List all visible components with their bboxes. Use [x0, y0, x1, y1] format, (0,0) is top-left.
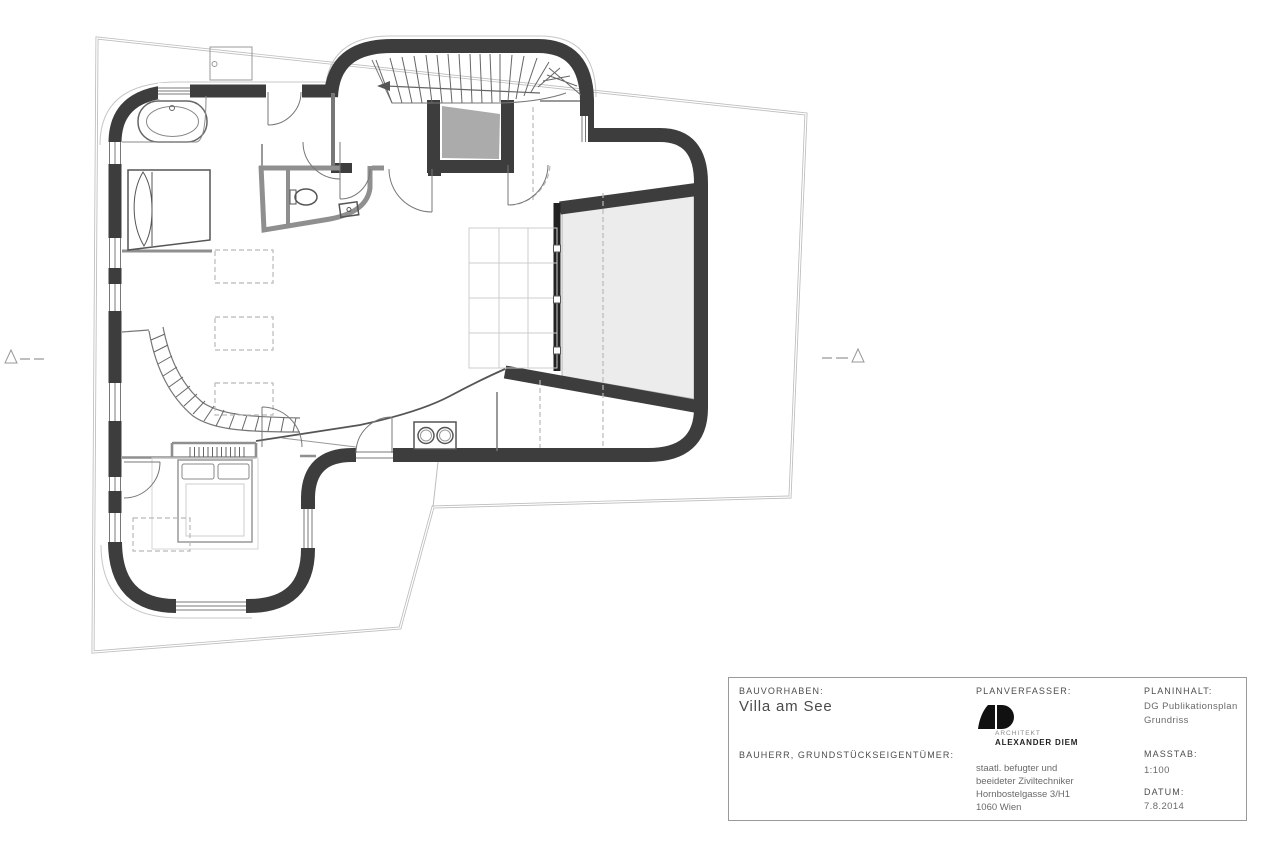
planinhalt-value-2: Grundriss: [1144, 715, 1189, 726]
facade-offset-lines: [100, 36, 596, 618]
wardrobe: [128, 170, 210, 250]
address-line: Hornbostelgasse 3/H1: [976, 788, 1074, 801]
project-name: Villa am See: [739, 698, 833, 715]
architect-address: staatl. befugter und beeideter Ziviltech…: [976, 762, 1074, 814]
architect-title: ARCHITEKT: [995, 730, 1041, 737]
architect-name: ALEXANDER DIEM: [995, 738, 1078, 747]
architect-logo: ARCHITEKT ALEXANDER DIEM: [976, 704, 1096, 748]
door-swing-wc: [340, 169, 370, 199]
section-marker-left: [5, 350, 44, 363]
window-bedroom-bottom: [176, 598, 246, 614]
window-connector: [579, 116, 588, 142]
sideboard-hatch: [190, 447, 244, 457]
door-threshold-kitchen: [356, 447, 393, 463]
cooktop: [414, 422, 456, 449]
address-line: beeideter Ziviltechniker: [976, 775, 1074, 788]
section-marker-right: [822, 349, 864, 362]
planinhalt-value-1: DG Publikationsplan: [1144, 701, 1238, 712]
door-opening-top: [266, 83, 302, 99]
datum-label: DATUM:: [1144, 787, 1184, 797]
terrace: [562, 194, 694, 399]
address-line: staatl. befugter und: [976, 762, 1074, 775]
plan-sheet: BAUVORHABEN: Villa am See BAUHERR, GRUND…: [0, 0, 1280, 853]
planinhalt-label: PLANINHALT:: [1144, 686, 1212, 696]
wc-toilet: [290, 189, 317, 205]
window-left-5: [106, 477, 124, 491]
skylight-dashed-2: [215, 317, 273, 350]
window-left-2: [106, 238, 124, 268]
glass-wall-grid: [469, 228, 557, 368]
planverfasser-label: PLANVERFASSER:: [976, 686, 1071, 696]
title-block: BAUVORHABEN: Villa am See BAUHERR, GRUND…: [728, 677, 1247, 821]
address-line: 1060 Wien: [976, 801, 1074, 814]
window-left-4: [106, 383, 124, 421]
skylight-dashed-4: [133, 518, 190, 551]
bauvorhaben-label: BAUVORHABEN:: [739, 686, 824, 696]
masstab-label: MASSTAB:: [1144, 749, 1198, 759]
masstab-value: 1:100: [1144, 765, 1170, 776]
door-swing-hall: [389, 169, 432, 212]
kitchen-counter-line: [256, 369, 505, 447]
window-left-3: [106, 284, 124, 311]
datum-value: 7.8.2014: [1144, 801, 1184, 812]
door-swing-bedroom-left: [124, 462, 160, 498]
window-bedroom-right: [300, 509, 316, 548]
bauherr-label: BAUHERR, GRUNDSTÜCKSEIGENTÜMER:: [739, 750, 954, 760]
window-top: [158, 83, 190, 99]
window-left-6: [106, 513, 124, 542]
skylight-dashed-1: [215, 250, 273, 283]
architect-logo-icon: [976, 704, 1016, 732]
window-left-1: [106, 142, 124, 164]
stair-direction-arrow: [377, 81, 390, 91]
bed: [178, 460, 252, 542]
elevator-shaft-cab: [442, 106, 500, 159]
